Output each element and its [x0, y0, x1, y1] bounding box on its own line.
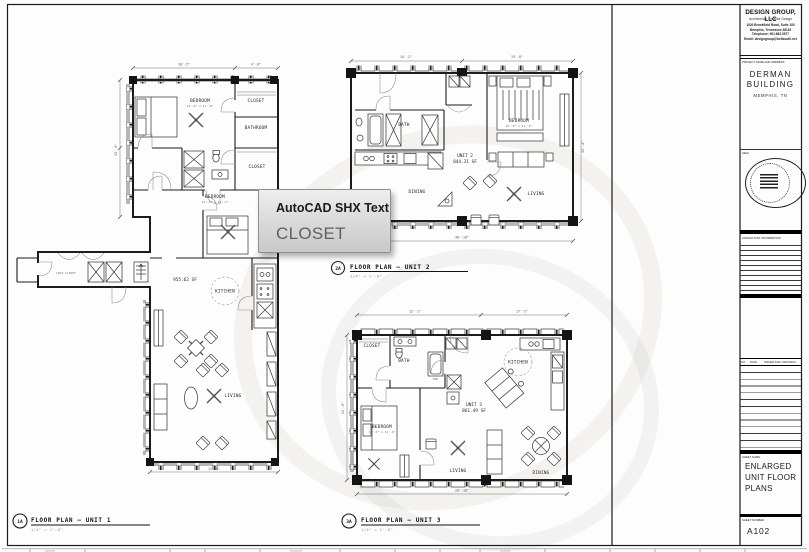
room-label-bath: BATH	[398, 358, 410, 364]
divider	[740, 55, 801, 59]
detail-bubble: 3A	[346, 519, 352, 525]
plan-scale-unit2: 1/4" = 1'-0"	[350, 274, 382, 279]
dim-text: 12'-1"	[409, 310, 421, 314]
dim-text: 15'-8"	[511, 55, 523, 59]
detail-bubble: 1A	[17, 519, 23, 525]
sofa	[426, 430, 502, 474]
room-label-living: LIVING	[527, 191, 544, 197]
kitchen-counter	[254, 264, 276, 328]
project-location: MEMPHIS, TN	[740, 93, 801, 98]
revision-col-no: NO.	[740, 361, 750, 364]
ceiling-fan-icon	[368, 458, 379, 469]
ceiling-fan-icon	[207, 389, 221, 403]
sheet-number-label: SHEET NUMBER	[740, 518, 803, 522]
kitchen-counter	[520, 338, 564, 410]
bed	[361, 406, 409, 477]
room-label-dining: DINING	[408, 189, 425, 195]
detail-bubble: 2A	[335, 266, 341, 272]
room-label-kitchen: KITCHEN	[508, 360, 528, 366]
seal-crest	[760, 174, 778, 190]
washer-dryer	[446, 338, 467, 349]
unit2-area: 844.31 SF	[453, 159, 477, 165]
divider	[740, 149, 801, 150]
room-label-closet2: CLOSET	[248, 164, 265, 170]
divider-bar	[740, 450, 801, 454]
unit2-number: UNIT 2	[457, 153, 473, 159]
room-label-tub: TUB	[432, 377, 438, 381]
tooltip-value: CLOSET	[276, 224, 390, 244]
dim-text: 14'-2"	[400, 55, 412, 59]
architect-seal	[745, 158, 806, 208]
divider-bar	[740, 514, 801, 517]
firm-address-line: Email: designgroup@bellsouth.net	[740, 37, 801, 42]
room-size-bedroom: 12'-0" x 11'-6"	[505, 124, 532, 128]
room-size-bedroom2: 11'-6" x 11'-2"	[201, 200, 228, 204]
firm-address: 1020 Brookfield Road, Suite 100 Memphis,…	[740, 23, 801, 42]
room-label-bathroom: BATHROOM	[245, 125, 268, 131]
plan-scale-unit1: 1/4" = 1'-0"	[31, 527, 63, 532]
ceiling-fan-icon	[189, 113, 203, 127]
project-label: PROJECT NAME AND ADDRESS	[740, 60, 803, 64]
project-name: DERMAN BUILDING	[740, 70, 801, 91]
stair	[134, 262, 148, 282]
living-furniture	[154, 310, 276, 450]
dim-text: 29'-10"	[455, 489, 469, 493]
bathroom-fixtures	[184, 151, 228, 188]
seal-label: SEAL	[740, 151, 803, 155]
room-size-bedroom: 11'-0" x 11'-6"	[368, 430, 395, 434]
revision-col-date: DATE	[750, 361, 764, 364]
unit2-plan-label: 2A FLOOR PLAN – UNIT 2 1/4" = 1'-0"	[332, 262, 469, 279]
room-size-bedroom1: 13'-6" x 11'-8"	[186, 104, 213, 108]
unit1-plan: BEDROOM 13'-6" x 11'-8" CLOSET BATHROOM …	[13, 63, 280, 533]
sofa	[489, 152, 553, 167]
sheet-number: A102	[747, 526, 808, 536]
unit3-number: UNIT 3	[466, 402, 482, 408]
floor-plan-drawing: BEDROOM 13'-6" x 11'-8" CLOSET BATHROOM …	[0, 0, 809, 552]
kitchen-island	[485, 364, 529, 408]
dining-set	[438, 174, 499, 225]
dim-text: 18'-5"	[178, 63, 190, 67]
dining-set	[174, 330, 218, 368]
sheet-name-label: SHEET NAME	[740, 455, 803, 459]
title-block: DESIGN GROUP, LLC Architecture · Interio…	[740, 0, 801, 552]
room-label-dining: DINING	[532, 470, 549, 476]
kitchen-counter	[355, 152, 443, 169]
shx-text-tooltip: AutoCAD SHX Text CLOSET	[258, 189, 391, 253]
dining-set	[521, 426, 561, 466]
dim-text: 31'-4"	[581, 141, 585, 153]
room-label-coat-closet: COAT CLOSET	[56, 271, 76, 275]
firm-address-line: 1020 Brookfield Road, Suite 100	[740, 23, 801, 28]
unit3-plan: CLOSET BATH TUB KITCHEN BEDROOM 11'-0" x…	[341, 310, 572, 533]
bed	[489, 76, 569, 146]
dim-text: 11'-0"	[341, 402, 345, 414]
tooltip-title: AutoCAD SHX Text	[276, 201, 390, 215]
ceiling-fan-icon	[507, 187, 521, 201]
divider-bar	[740, 294, 801, 298]
dim-text: 12'-8"	[208, 467, 220, 471]
divider-bar	[740, 230, 801, 234]
room-label-kitchen: KITCHEN	[215, 289, 235, 295]
dim-text: 36'-10"	[455, 236, 469, 240]
plan-title-unit3: FLOOR PLAN – UNIT 3	[361, 517, 441, 524]
ceiling-fan-icon	[451, 441, 465, 455]
application-window: BEDROOM 13'-6" x 11'-8" CLOSET BATHROOM …	[0, 0, 809, 552]
elevator	[88, 262, 122, 282]
sheet-name: ENLARGED UNIT FLOOR PLANS	[745, 462, 806, 494]
dim-text: 17'-5"	[516, 310, 528, 314]
room-label-bath: BATH	[398, 122, 410, 128]
revision-ruled-lines	[740, 366, 801, 449]
plan-title-unit2: FLOOR PLAN – UNIT 2	[350, 264, 430, 271]
unit1-area: 955.62 SF	[173, 277, 197, 283]
bathroom-fixtures	[356, 114, 438, 146]
dim-text: 4'-0"	[251, 63, 261, 67]
bed-2	[207, 216, 248, 254]
consultant-ruled-lines	[740, 241, 801, 292]
bed	[135, 97, 177, 137]
plan-scale-unit3: 1/4" = 1'-0"	[361, 527, 393, 532]
un1-plan-label: 1A FLOOR PLAN – UNIT 1 1/4" = 1'-0"	[13, 514, 150, 532]
room-label-closet1: CLOSET	[247, 98, 264, 104]
dim-text: 13'-4"	[114, 144, 118, 156]
room-label-closet: CLOSET	[363, 343, 380, 349]
firm-subtitle: Architecture · Interior Design	[740, 17, 801, 21]
revision-table-header: NO. DATE ISSUED FOR / REVISION	[740, 358, 801, 366]
consultant-label: CONSULTANT INFORMATION	[740, 236, 803, 240]
room-label-living: LIVING	[449, 468, 466, 474]
plan-title-unit1: FLOOR PLAN – UNIT 1	[31, 517, 111, 524]
room-label-living: LIVING	[224, 393, 241, 399]
revision-col-description: ISSUED FOR / REVISION	[764, 361, 801, 364]
unit3-plan-label: 3A FLOOR PLAN – UNIT 3 1/4" = 1'-0"	[342, 514, 480, 532]
unit3-area: 861.49 SF	[462, 408, 486, 414]
